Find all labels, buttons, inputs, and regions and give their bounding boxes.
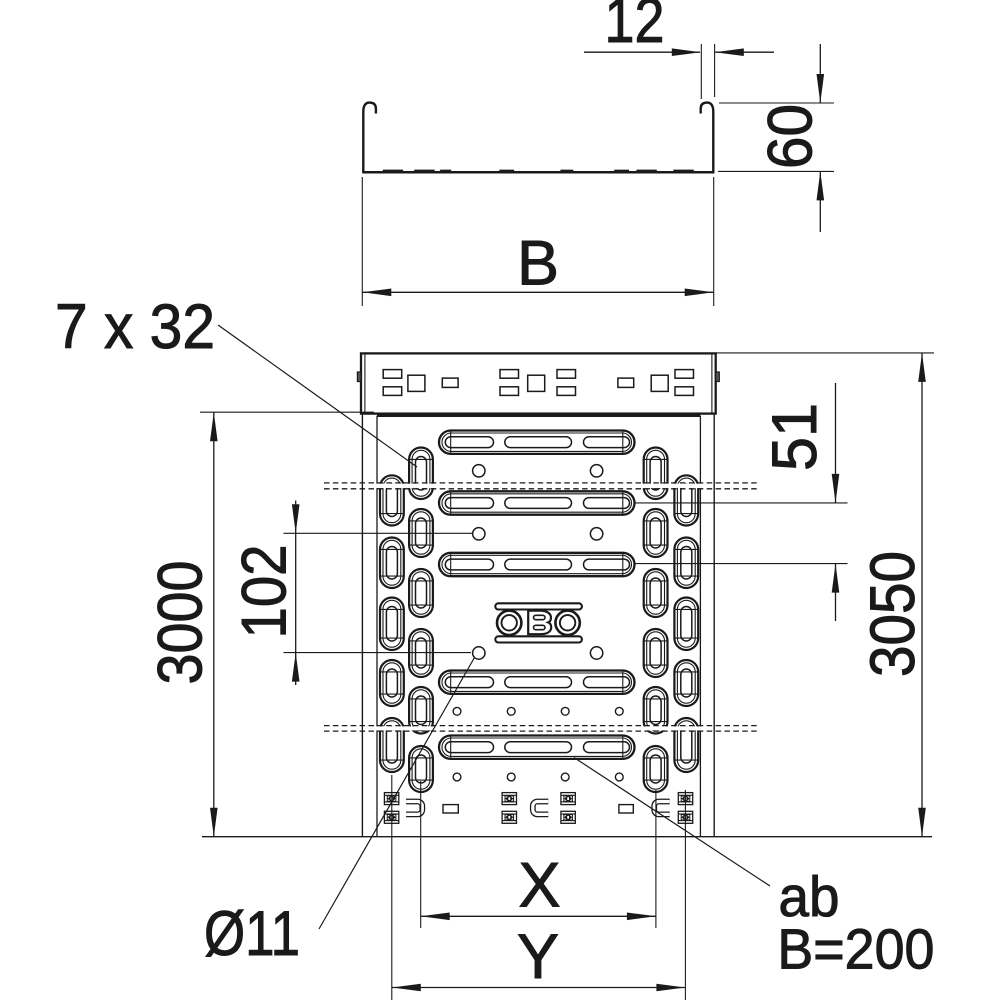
svg-text:Y: Y — [517, 922, 559, 992]
svg-text:12: 12 — [605, 0, 665, 56]
svg-text:51: 51 — [760, 403, 830, 471]
svg-text:7 x 32: 7 x 32 — [55, 292, 215, 362]
svg-text:102: 102 — [230, 545, 300, 639]
svg-text:X: X — [518, 851, 560, 921]
svg-text:3000: 3000 — [146, 561, 216, 685]
svg-text:3050: 3050 — [858, 551, 928, 677]
svg-text:Ø11: Ø11 — [204, 899, 300, 969]
svg-text:60: 60 — [756, 104, 826, 169]
svg-text:B: B — [517, 229, 559, 299]
svg-text:B=200: B=200 — [777, 918, 934, 982]
